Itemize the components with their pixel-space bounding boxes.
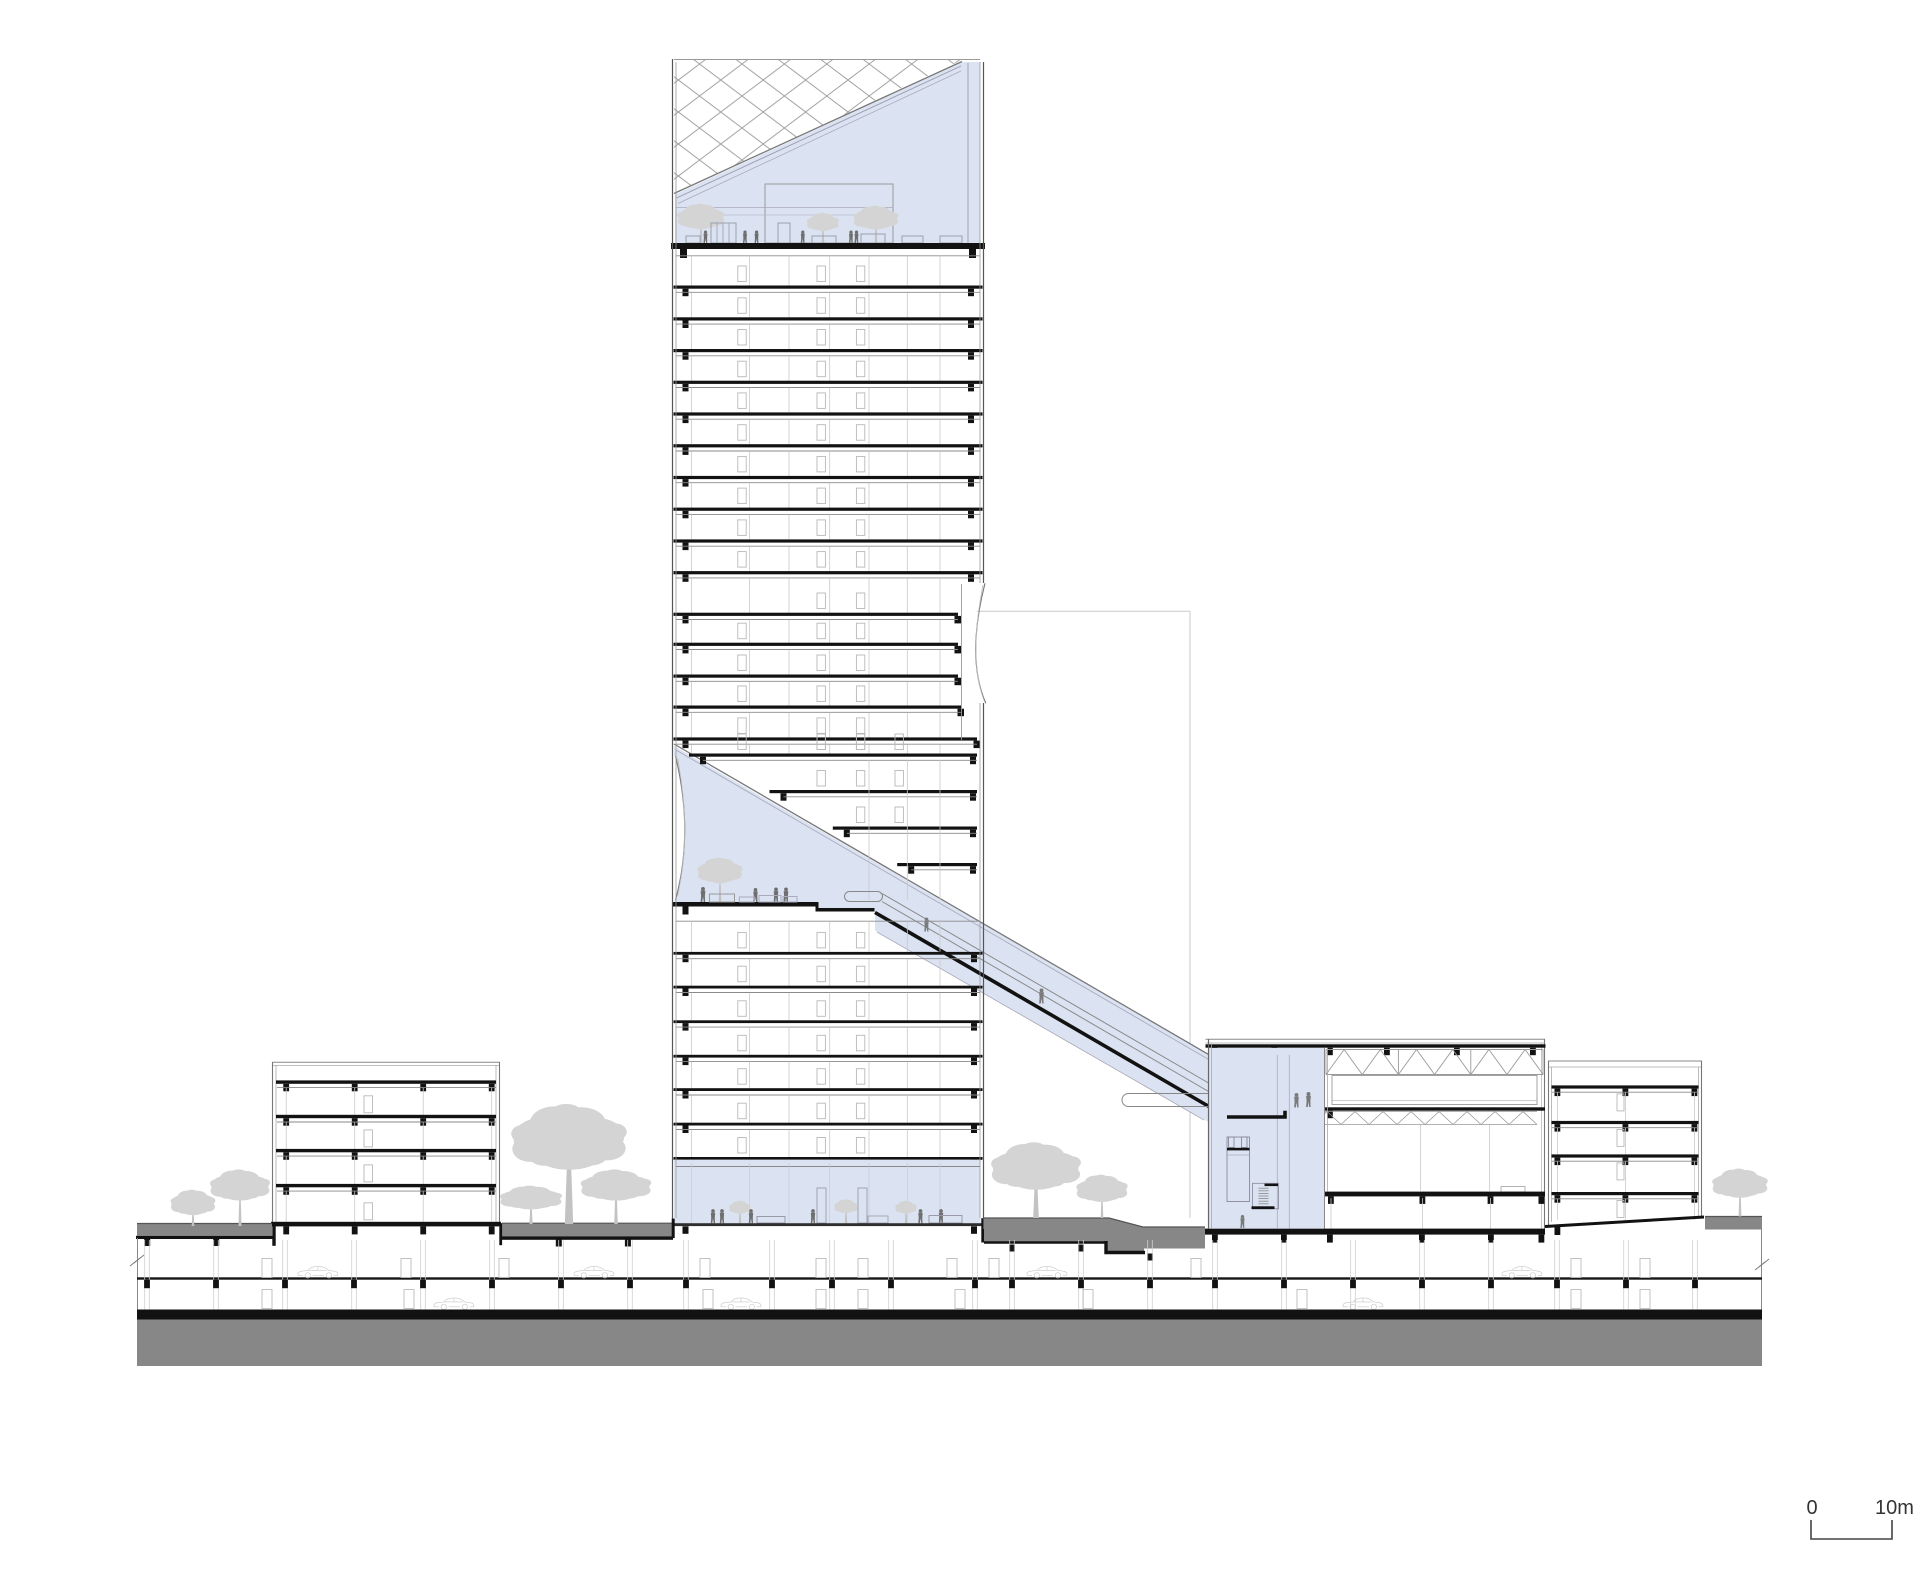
svg-text:0: 0 — [1806, 1497, 1817, 1519]
svg-text:10m: 10m — [1875, 1497, 1914, 1519]
